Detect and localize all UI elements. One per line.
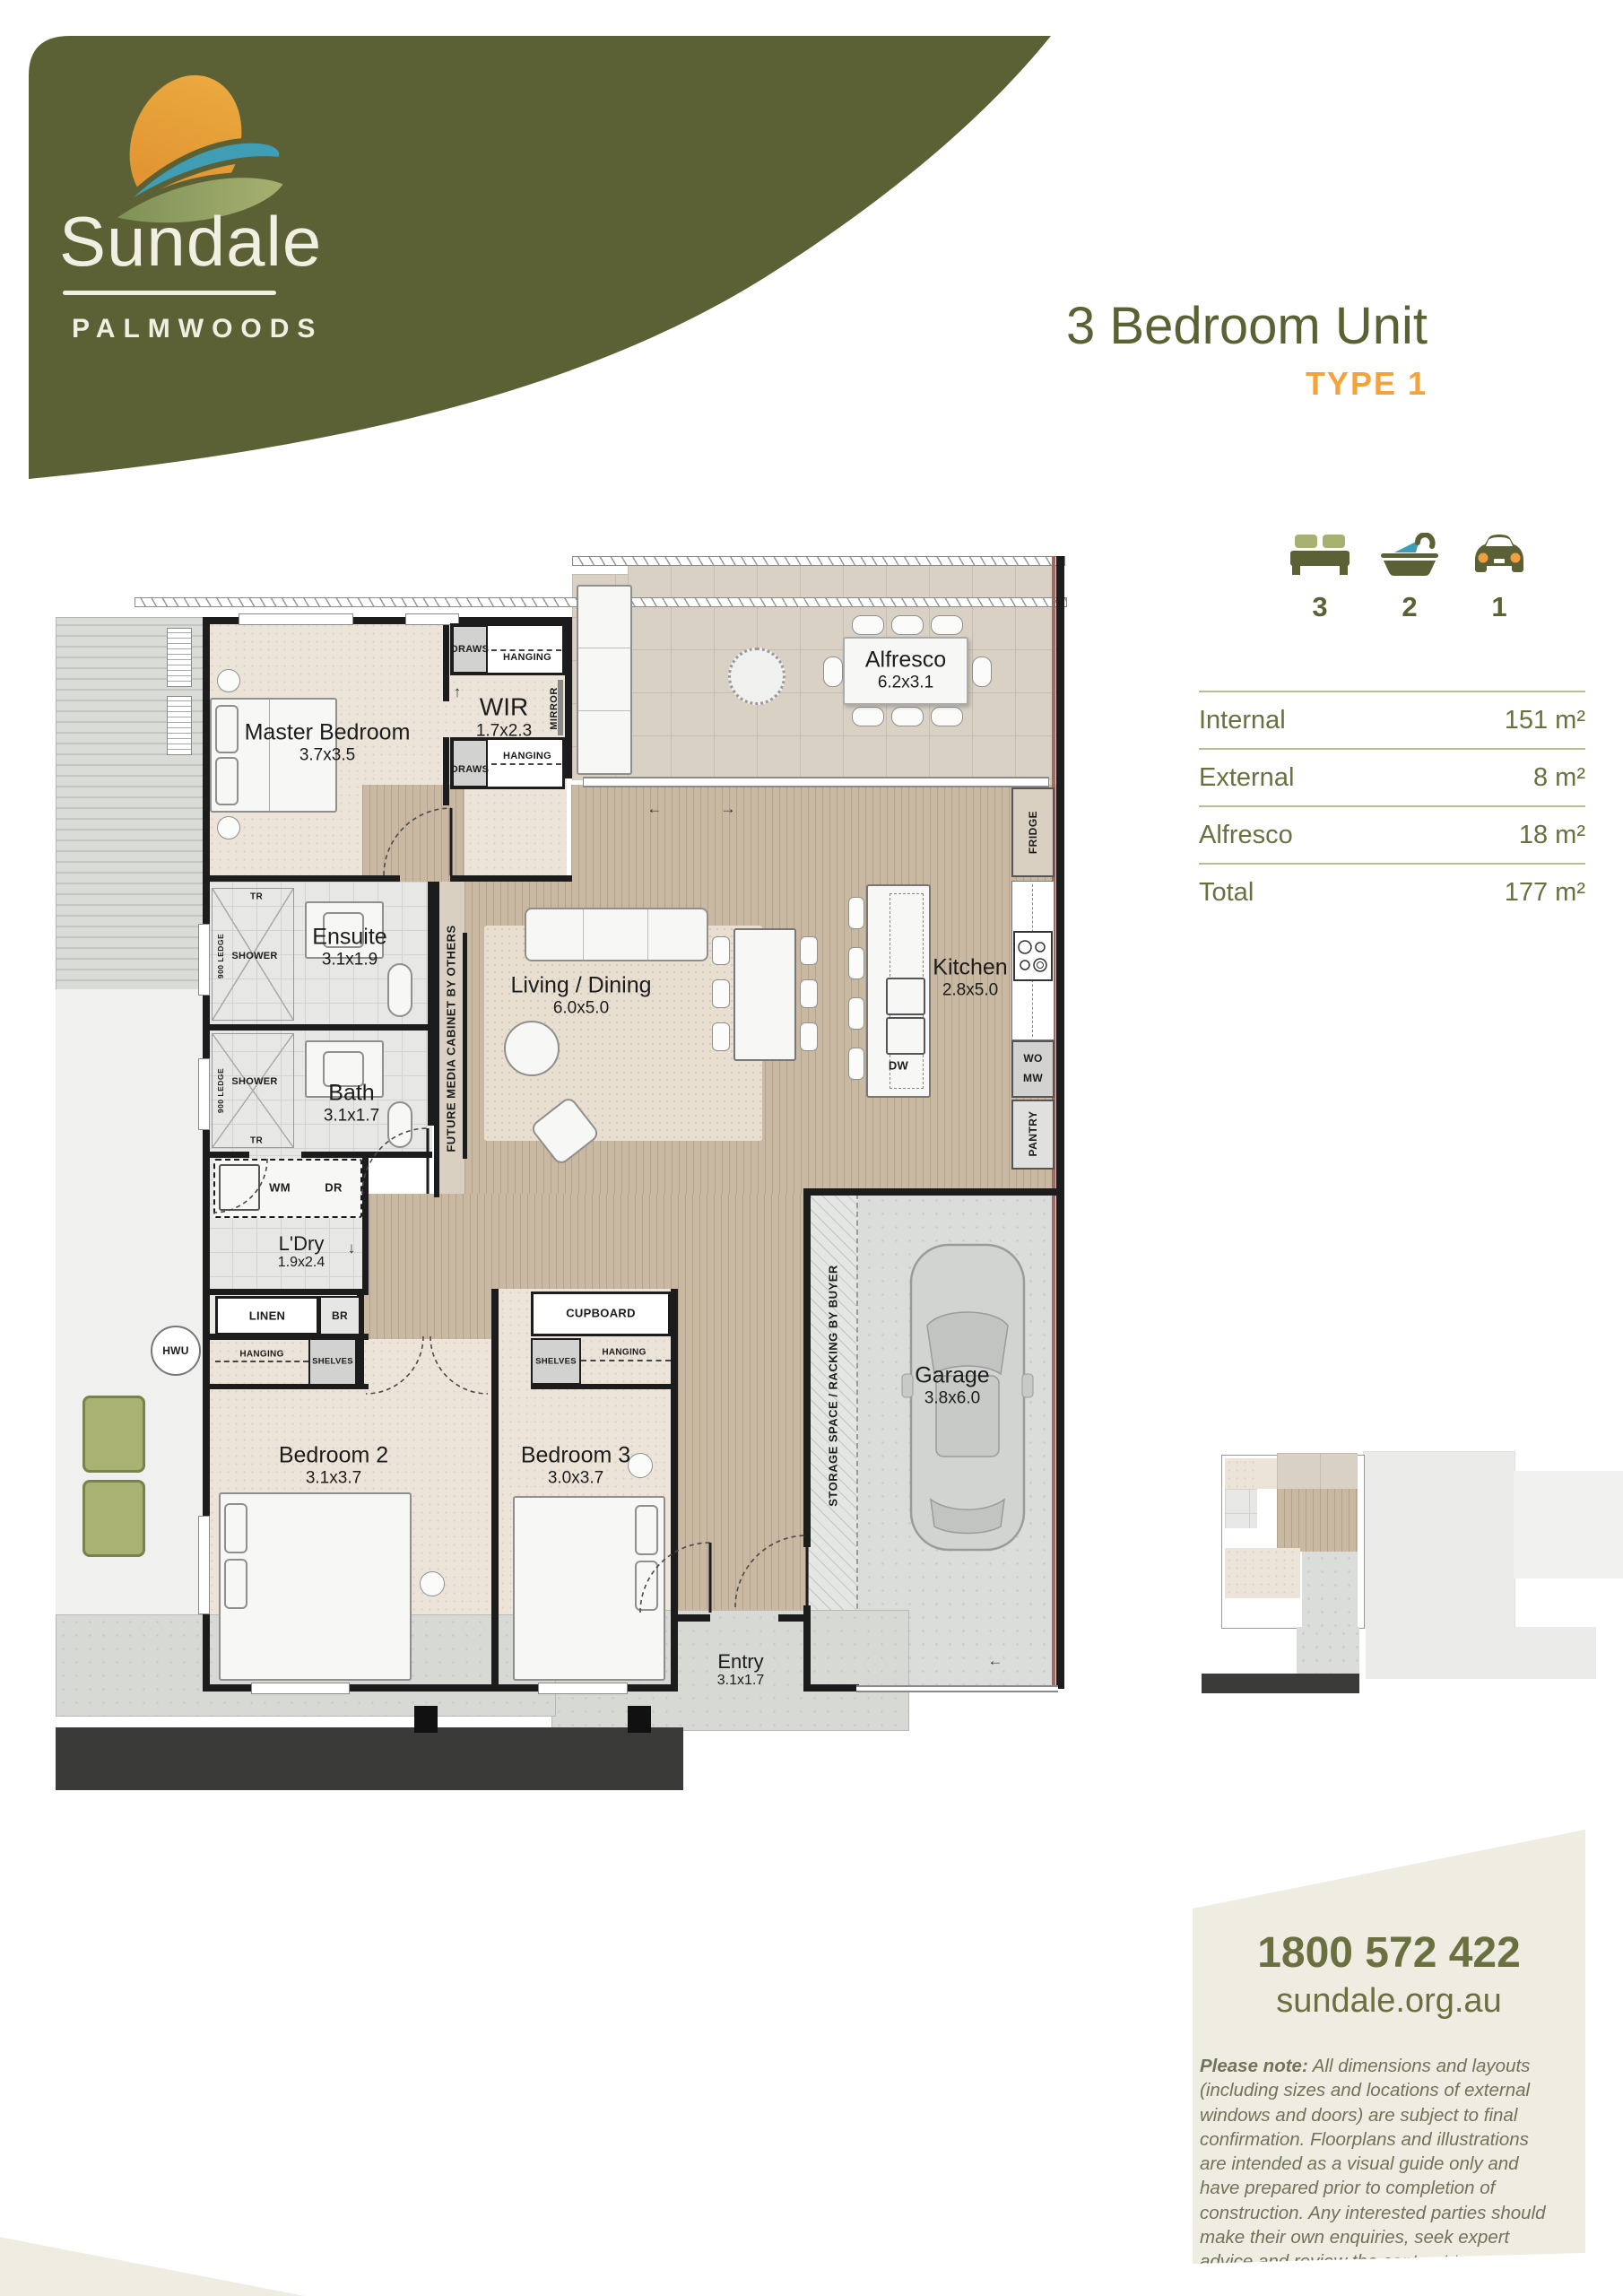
plan-label-hanging: HANGING xyxy=(503,751,551,761)
wir-arrow: ↑ xyxy=(454,683,462,701)
room-label-master: Master Bedroom3.7x3.5 xyxy=(245,720,411,765)
plan-label-hanging: HANGING xyxy=(239,1350,283,1360)
room-label-bath: Bath3.1x1.7 xyxy=(324,1081,379,1126)
room-label-wir: WIR1.7x2.3 xyxy=(476,694,532,742)
plan-label-pantry: PANTRY xyxy=(1027,1111,1039,1157)
plan-label-wo: WO xyxy=(1023,1052,1042,1065)
mini-neighbor-l­ot xyxy=(1366,1627,1596,1679)
garage-arrow: ← xyxy=(988,1652,1003,1670)
plan-label-br: BR xyxy=(332,1309,348,1322)
plan-label-cupboard: CUPBOARD xyxy=(566,1307,636,1320)
laundry-arrow: ↓ xyxy=(348,1239,356,1257)
room-label-bedroom2: Bedroom 23.1x3.7 xyxy=(279,1443,388,1488)
room-label-bedroom3: Bedroom 33.0x3.7 xyxy=(521,1443,630,1488)
plan-label-wm: WM xyxy=(269,1181,291,1195)
plan-label-hanging: HANGING xyxy=(602,1348,646,1358)
plan-label-ledge: 900 LEDGE xyxy=(216,1068,225,1113)
room-label-kitchen: Kitchen2.8x5.0 xyxy=(933,955,1007,1000)
room-label-garage: Garage3.8x6.0 xyxy=(915,1363,989,1408)
website-link[interactable]: sundale.org.au xyxy=(1193,1982,1585,2021)
slider-arrow: ← xyxy=(647,800,663,818)
mini-road xyxy=(1202,1674,1359,1693)
floorplan-brochure-page: Sundale PALMWOODS 3 Bedroom Unit TYPE 1 … xyxy=(0,0,1623,2296)
plan-label-shelves: SHELVES xyxy=(535,1357,577,1367)
room-label-entry: Entry3.1x1.7 xyxy=(717,1651,764,1689)
plan-label-hanging: HANGING xyxy=(503,652,551,663)
room-label-ensuite: Ensuite3.1x1.9 xyxy=(312,925,386,970)
disclaimer-label: Please note: xyxy=(1200,2056,1308,2076)
mini-neighbor-lot xyxy=(1514,1471,1623,1578)
plan-label-hwu: HWU xyxy=(162,1344,189,1357)
plan-label-shower: SHOWER xyxy=(231,1076,277,1087)
plan-label-shelves: SHELVES xyxy=(312,1357,353,1367)
plan-label-shower: SHOWER xyxy=(231,951,277,961)
plan-label-draws: DRAWS xyxy=(451,764,489,775)
plan-label-ledge: 900 LEDGE xyxy=(216,934,225,978)
plan-label-fridge: FRIDGE xyxy=(1027,811,1039,854)
room-label-alfresco: Alfresco6.2x3.1 xyxy=(865,648,946,692)
room-label-living: Living / Dining6.0x5.0 xyxy=(510,973,651,1018)
plan-label-draws: DRAWS xyxy=(451,644,489,655)
plan-label-mw: MW xyxy=(1023,1072,1043,1084)
slider-arrow: → xyxy=(721,800,736,818)
plan-label-linen: LINEN xyxy=(249,1309,286,1323)
plan-label-dw: DW xyxy=(889,1059,908,1073)
mini-neighbor-lot xyxy=(1363,1451,1515,1629)
phone-number: 1800 572 422 xyxy=(1193,1928,1585,1978)
plan-label-tr: TR xyxy=(250,892,263,902)
plan-label-storage: STORAGE SPACE / RACKING BY BUYER xyxy=(827,1265,840,1507)
plan-label-tr: TR xyxy=(250,1136,263,1146)
plan-label-mirror: MIRROR xyxy=(549,687,560,730)
plan-label-media-cabinet: FUTURE MEDIA CABINET BY OTHERS xyxy=(445,925,458,1152)
room-label-laundry: L'Dry1.9x2.4 xyxy=(278,1233,325,1271)
plan-label-dr: DR xyxy=(325,1181,342,1195)
